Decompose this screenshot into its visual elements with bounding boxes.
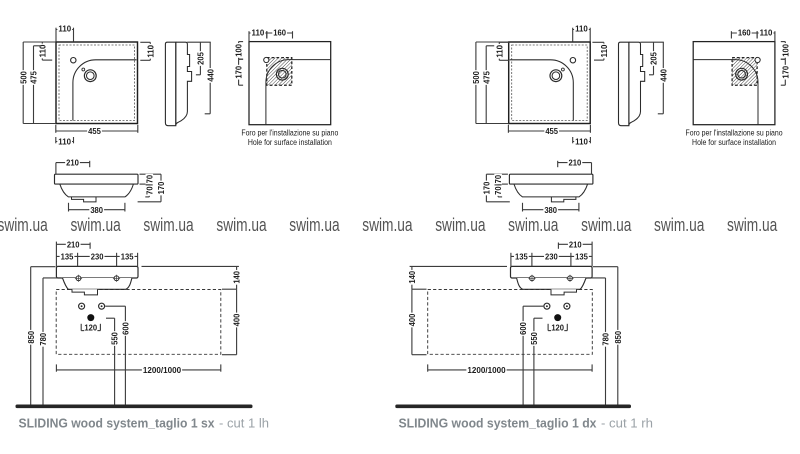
svg-text:110: 110 bbox=[145, 45, 155, 58]
svg-text:Foro per l'installazione su pi: Foro per l'installazione su piano bbox=[686, 128, 784, 137]
svg-text:1200/1000: 1200/1000 bbox=[467, 365, 505, 375]
svg-text:100: 100 bbox=[780, 44, 790, 57]
svg-text:100: 100 bbox=[234, 44, 244, 57]
svg-text:210: 210 bbox=[67, 239, 80, 249]
svg-text:- cut 1 lh: - cut 1 lh bbox=[219, 416, 269, 431]
svg-text:120: 120 bbox=[84, 322, 97, 332]
svg-text:400: 400 bbox=[407, 313, 417, 326]
svg-text:140: 140 bbox=[407, 271, 417, 284]
svg-text:70: 70 bbox=[144, 186, 154, 195]
svg-text:210: 210 bbox=[66, 158, 79, 168]
svg-text:440: 440 bbox=[205, 69, 215, 82]
svg-text:swim.ua: swim.ua bbox=[143, 214, 194, 235]
svg-text:205: 205 bbox=[649, 52, 659, 65]
svg-text:500: 500 bbox=[471, 71, 481, 84]
svg-text:110: 110 bbox=[575, 24, 588, 34]
svg-text:780: 780 bbox=[38, 333, 48, 346]
svg-text:swim.ua: swim.ua bbox=[727, 214, 778, 235]
svg-text:455: 455 bbox=[88, 126, 101, 136]
svg-text:550: 550 bbox=[529, 332, 539, 345]
svg-text:170: 170 bbox=[234, 66, 244, 79]
svg-text:205: 205 bbox=[196, 52, 206, 65]
svg-text:160: 160 bbox=[273, 28, 286, 38]
svg-text:160: 160 bbox=[738, 28, 751, 38]
svg-text:70: 70 bbox=[493, 175, 503, 184]
svg-text:110: 110 bbox=[494, 45, 504, 58]
svg-text:110: 110 bbox=[58, 137, 71, 147]
svg-text:135: 135 bbox=[61, 252, 74, 262]
svg-text:70: 70 bbox=[144, 175, 154, 184]
svg-text:swim.ua: swim.ua bbox=[0, 214, 48, 235]
svg-text:swim.ua: swim.ua bbox=[70, 214, 121, 235]
svg-text:110: 110 bbox=[575, 137, 588, 147]
svg-text:swim.ua: swim.ua bbox=[508, 214, 559, 235]
svg-text:780: 780 bbox=[601, 333, 611, 346]
svg-text:110: 110 bbox=[58, 24, 71, 34]
svg-text:210: 210 bbox=[569, 239, 582, 249]
svg-text:70: 70 bbox=[493, 186, 503, 195]
svg-text:600: 600 bbox=[121, 322, 131, 335]
svg-text:400: 400 bbox=[232, 313, 242, 326]
svg-text:110: 110 bbox=[599, 44, 609, 57]
svg-text:swim.ua: swim.ua bbox=[654, 214, 705, 235]
svg-text:swim.ua: swim.ua bbox=[362, 214, 413, 235]
svg-text:Hole for surface installation: Hole for surface installation bbox=[692, 138, 776, 147]
svg-text:swim.ua: swim.ua bbox=[216, 214, 267, 235]
svg-text:Hole for surface installation: Hole for surface installation bbox=[248, 138, 332, 147]
svg-text:110: 110 bbox=[760, 28, 773, 38]
svg-text:600: 600 bbox=[518, 322, 528, 335]
svg-text:475: 475 bbox=[29, 71, 39, 84]
svg-text:140: 140 bbox=[232, 271, 242, 284]
svg-text:110: 110 bbox=[37, 44, 47, 57]
svg-text:swim.ua: swim.ua bbox=[435, 214, 486, 235]
svg-text:230: 230 bbox=[91, 252, 104, 262]
svg-text:135: 135 bbox=[121, 252, 134, 262]
svg-text:135: 135 bbox=[575, 252, 588, 262]
svg-text:110: 110 bbox=[252, 28, 265, 38]
svg-text:170: 170 bbox=[780, 66, 790, 79]
svg-text:SLIDING wood system_taglio 1 d: SLIDING wood system_taglio 1 dx bbox=[399, 416, 598, 431]
svg-text:210: 210 bbox=[569, 158, 582, 168]
svg-text:230: 230 bbox=[545, 252, 558, 262]
svg-text:550: 550 bbox=[110, 332, 120, 345]
svg-text:swim.ua: swim.ua bbox=[581, 214, 632, 235]
svg-text:440: 440 bbox=[658, 69, 668, 82]
svg-text:475: 475 bbox=[481, 71, 491, 84]
svg-text:170: 170 bbox=[482, 181, 492, 194]
svg-text:swim.ua: swim.ua bbox=[289, 214, 340, 235]
svg-text:500: 500 bbox=[18, 71, 28, 84]
svg-text:1200/1000: 1200/1000 bbox=[143, 365, 181, 375]
svg-text:Foro per l'installazione su pi: Foro per l'installazione su piano bbox=[241, 128, 339, 137]
svg-text:135: 135 bbox=[515, 252, 528, 262]
svg-text:455: 455 bbox=[545, 126, 558, 136]
svg-text:170: 170 bbox=[156, 181, 166, 194]
svg-text:120: 120 bbox=[551, 322, 564, 332]
svg-text:SLIDING wood system_taglio 1 s: SLIDING wood system_taglio 1 sx bbox=[19, 416, 216, 431]
svg-text:850: 850 bbox=[26, 331, 36, 344]
svg-text:- cut 1 rh: - cut 1 rh bbox=[601, 416, 653, 431]
svg-text:850: 850 bbox=[613, 331, 623, 344]
